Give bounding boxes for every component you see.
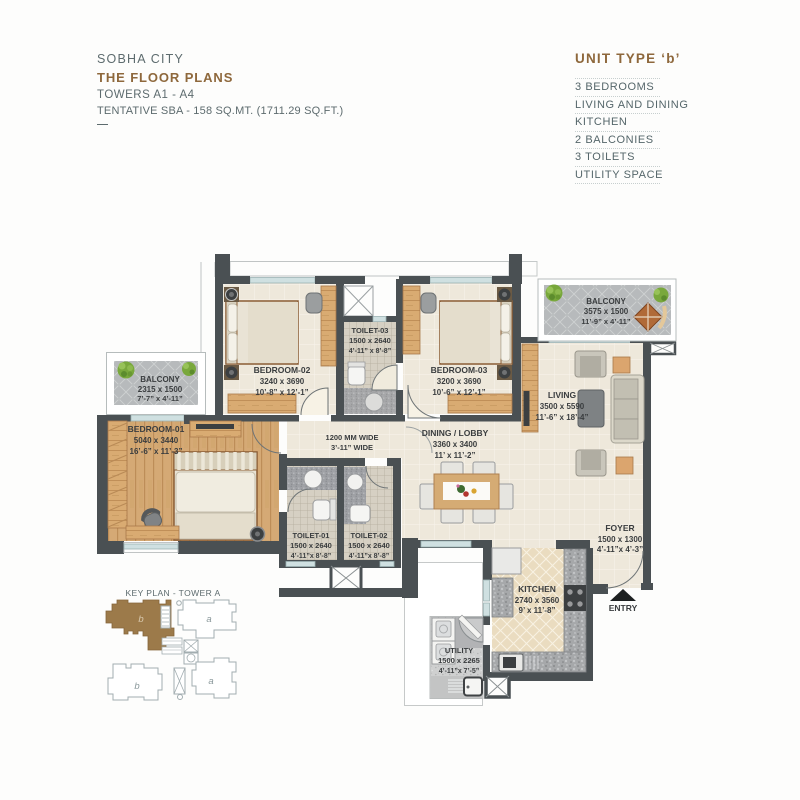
svg-text:4’-11”x 4’-3”: 4’-11”x 4’-3” [597, 545, 643, 554]
svg-text:4’-11”x 8’-8”: 4’-11”x 8’-8” [291, 553, 331, 560]
svg-text:1200 MM WIDE: 1200 MM WIDE [326, 433, 379, 442]
svg-text:DINING / LOBBY: DINING / LOBBY [422, 428, 489, 438]
svg-text:9’ x 11’-8”: 9’ x 11’-8” [519, 606, 556, 615]
svg-text:2740 x 3560: 2740 x 3560 [515, 596, 560, 605]
svg-text:BEDROOM-01: BEDROOM-01 [128, 424, 185, 434]
svg-text:5040 x 3440: 5040 x 3440 [134, 436, 179, 445]
svg-text:1500 x 2640: 1500 x 2640 [348, 541, 390, 550]
svg-text:11’-6” x 18’-4”: 11’-6” x 18’-4” [536, 413, 589, 422]
svg-text:BEDROOM-03: BEDROOM-03 [431, 365, 488, 375]
svg-text:3’-11” WIDE: 3’-11” WIDE [331, 443, 373, 452]
svg-text:LIVING: LIVING [548, 390, 577, 400]
svg-text:11’-9” x 4’-11”: 11’-9” x 4’-11” [581, 317, 630, 326]
svg-text:a: a [208, 676, 213, 687]
svg-text:4’-11” x 8’-8”: 4’-11” x 8’-8” [349, 348, 391, 355]
svg-text:TOILET-01: TOILET-01 [293, 531, 330, 540]
svg-text:10’-8” x 12’-1”: 10’-8” x 12’-1” [255, 388, 308, 397]
svg-text:1500 x 1300: 1500 x 1300 [598, 535, 643, 544]
svg-text:FOYER: FOYER [605, 523, 634, 533]
svg-text:BALCONY: BALCONY [140, 375, 180, 384]
svg-text:7’-7” x 4’-11”: 7’-7” x 4’-11” [137, 394, 183, 403]
svg-text:2315 x 1500: 2315 x 1500 [138, 385, 183, 394]
svg-text:UTILITY: UTILITY [445, 646, 473, 655]
svg-text:BALCONY: BALCONY [586, 297, 626, 306]
svg-text:TOILET-02: TOILET-02 [351, 531, 388, 540]
svg-text:3500 x 5590: 3500 x 5590 [540, 402, 585, 411]
svg-text:4’-11”x 8’-8”: 4’-11”x 8’-8” [349, 553, 389, 560]
svg-text:3200 x 3690: 3200 x 3690 [437, 377, 482, 386]
svg-text:KEY PLAN - TOWER A: KEY PLAN - TOWER A [125, 588, 220, 598]
svg-text:BEDROOM-02: BEDROOM-02 [254, 365, 311, 375]
svg-text:10’-6” x 12’-1”: 10’-6” x 12’-1” [432, 388, 485, 397]
svg-text:1500 x 2640: 1500 x 2640 [349, 336, 391, 345]
svg-text:3360 x 3400: 3360 x 3400 [433, 440, 478, 449]
svg-text:4’-11”x 7’-5”: 4’-11”x 7’-5” [439, 668, 479, 675]
svg-text:b: b [138, 614, 143, 625]
svg-text:11’ x 11’-2”: 11’ x 11’-2” [435, 451, 476, 460]
svg-text:16’-6” x 11’-3”: 16’-6” x 11’-3” [130, 447, 183, 456]
svg-text:1500 x 2640: 1500 x 2640 [290, 541, 332, 550]
svg-text:KITCHEN: KITCHEN [518, 584, 556, 594]
svg-text:3575 x 1500: 3575 x 1500 [584, 307, 629, 316]
svg-text:b: b [134, 681, 139, 692]
svg-text:1500 x 2265: 1500 x 2265 [438, 656, 480, 665]
svg-text:3240 x 3690: 3240 x 3690 [260, 377, 305, 386]
svg-text:a: a [206, 614, 211, 625]
svg-text:ENTRY: ENTRY [609, 603, 638, 613]
svg-text:TOILET-03: TOILET-03 [352, 326, 389, 335]
